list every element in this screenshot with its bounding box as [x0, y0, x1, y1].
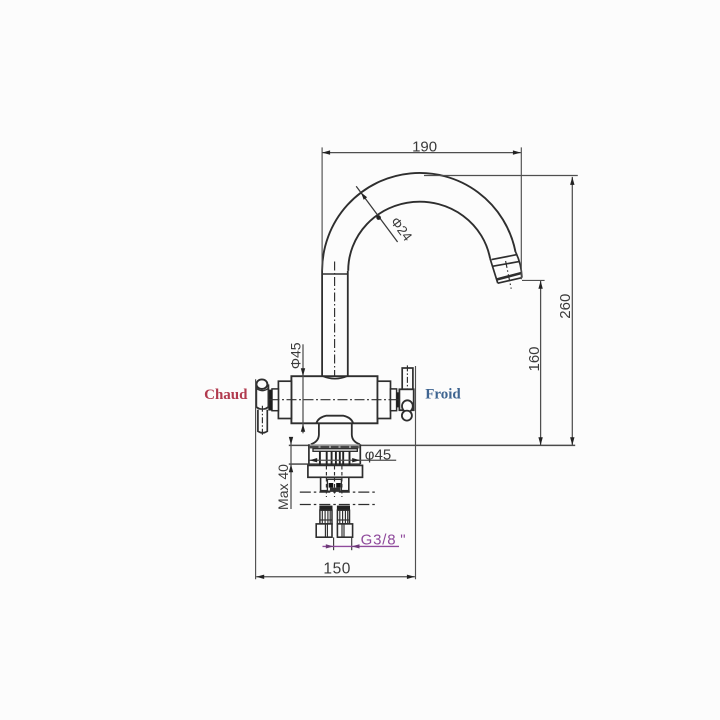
svg-text:150: 150	[323, 561, 351, 578]
svg-text:G3/8 ": G3/8 "	[361, 532, 407, 549]
svg-text:Max 40: Max 40	[275, 464, 291, 510]
svg-text:Chaud: Chaud	[204, 387, 248, 403]
svg-text:260: 260	[557, 294, 574, 319]
svg-text:Froid: Froid	[425, 387, 461, 403]
svg-text:160: 160	[526, 346, 543, 371]
svg-text:Φ45: Φ45	[287, 342, 303, 369]
svg-text:190: 190	[412, 138, 437, 155]
svg-text:φ45: φ45	[365, 447, 391, 464]
